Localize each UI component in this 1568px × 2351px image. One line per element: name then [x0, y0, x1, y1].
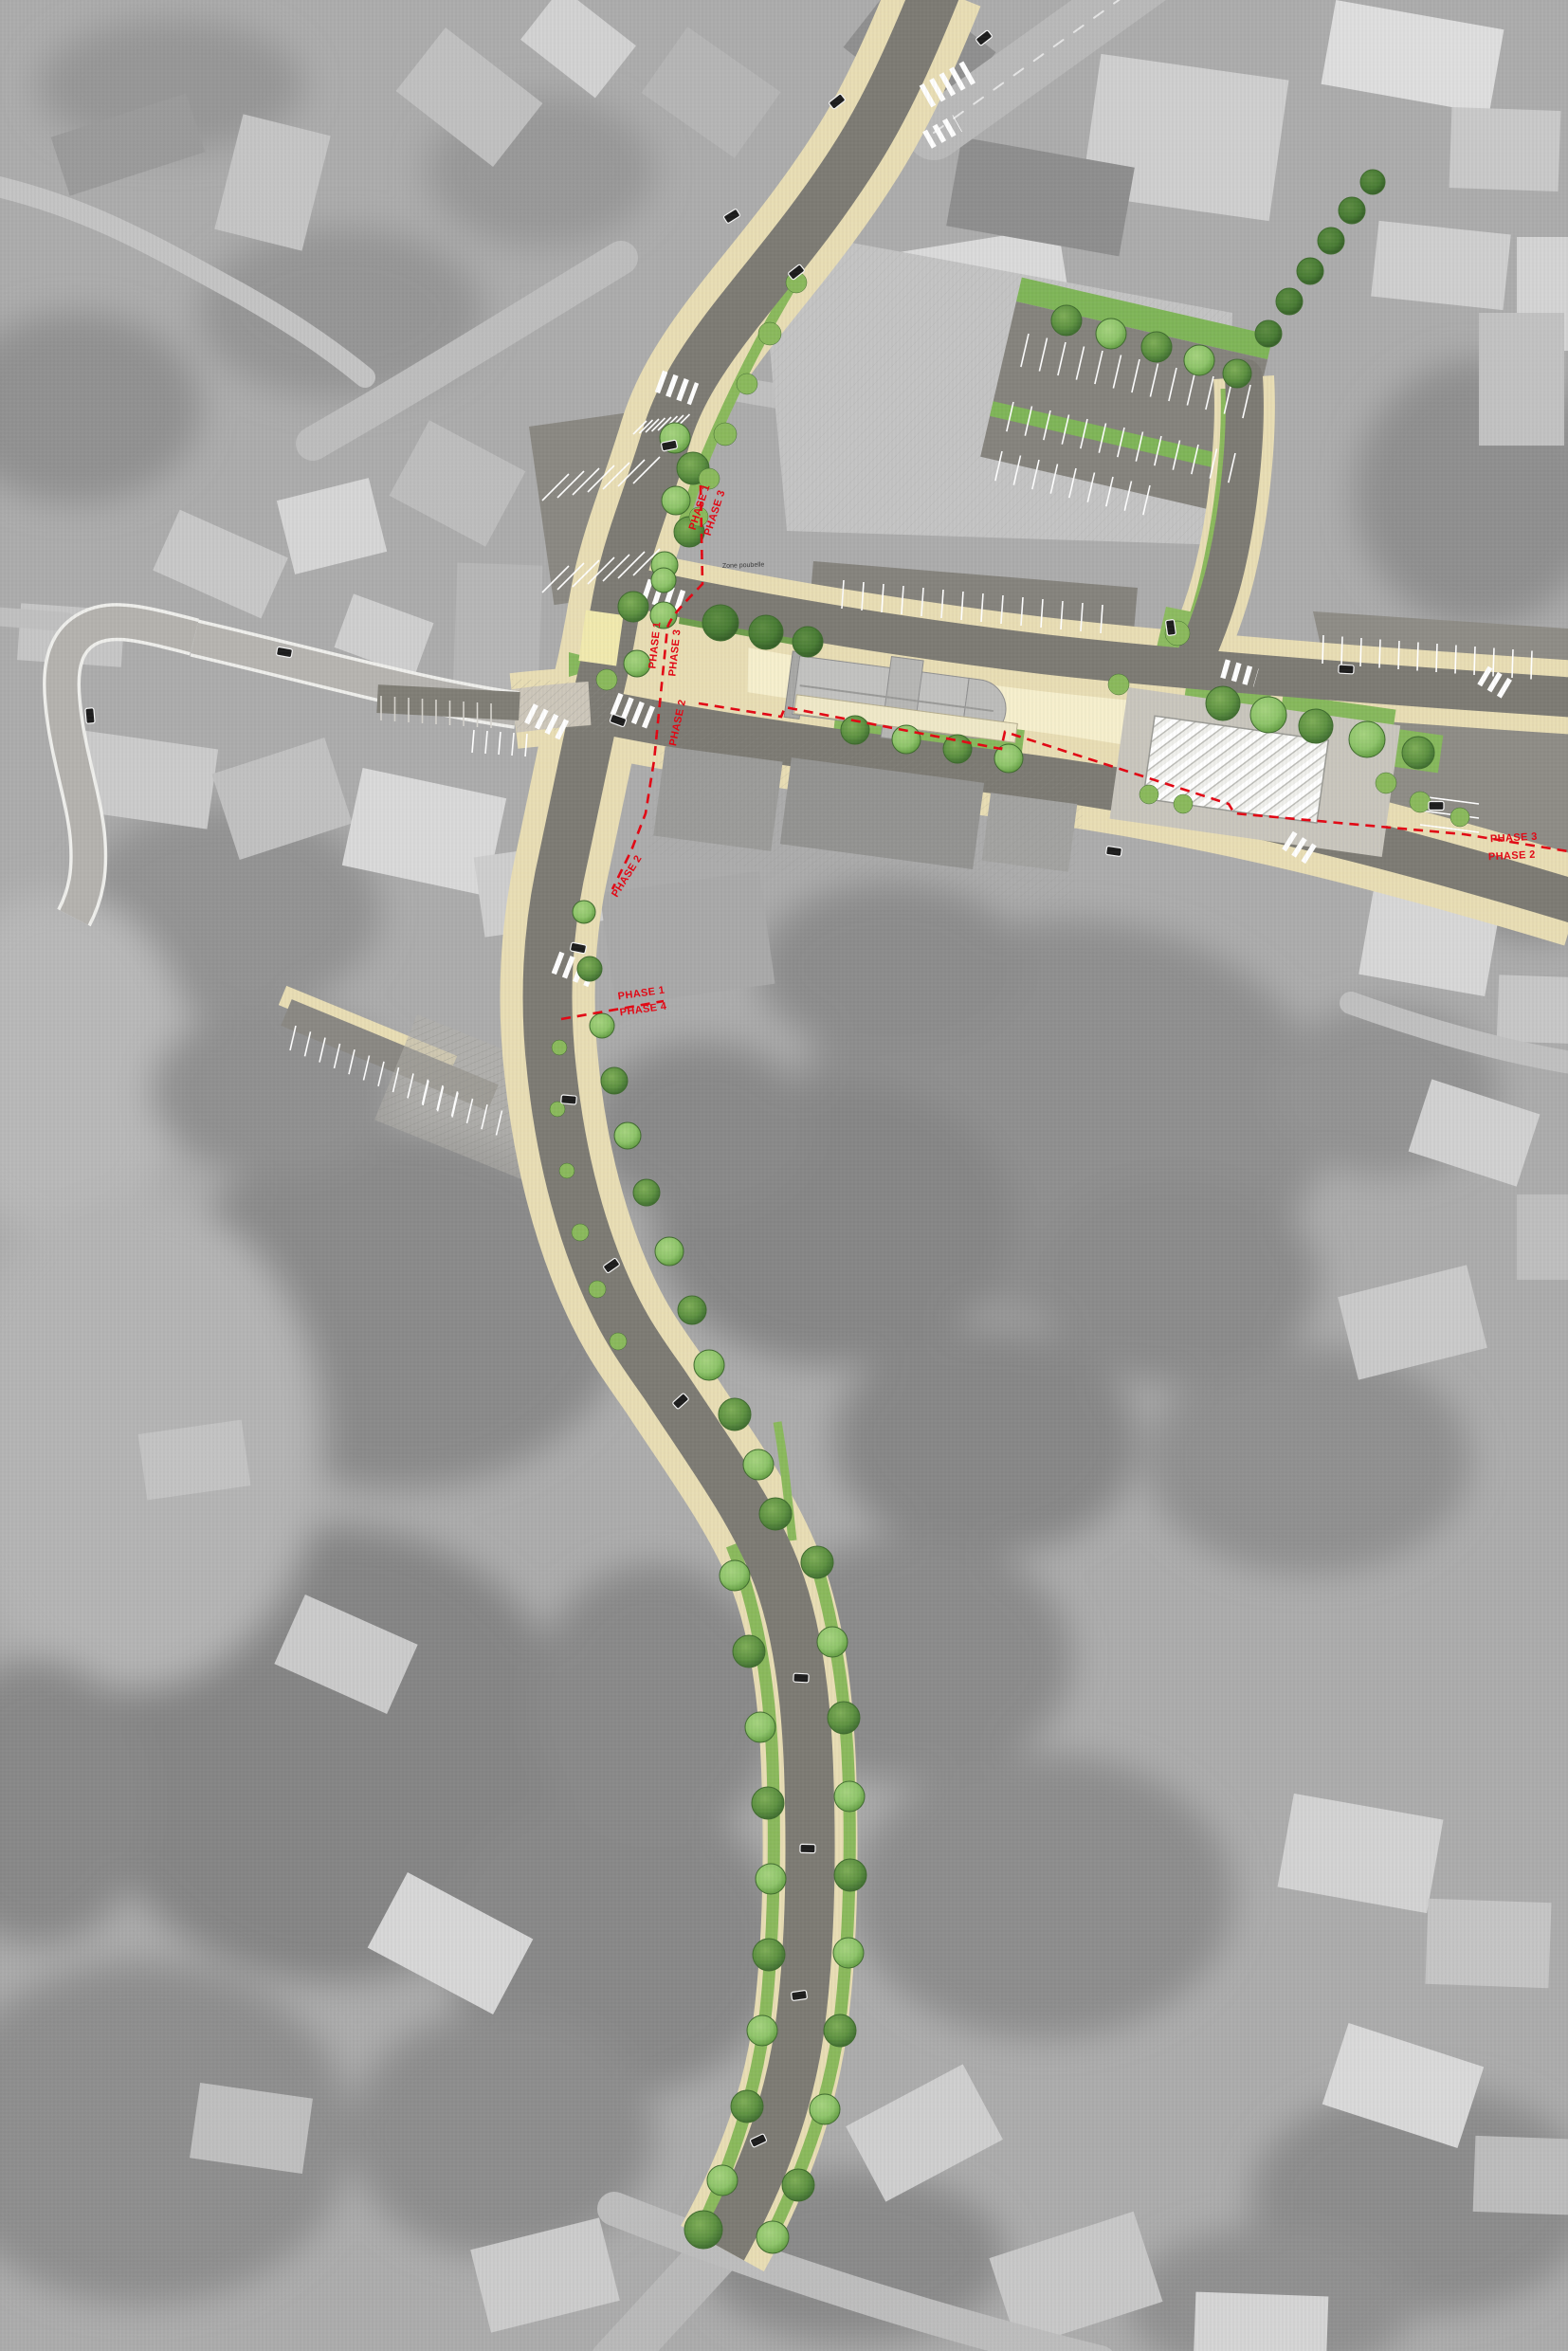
bush: [552, 1040, 567, 1055]
bush: [1450, 808, 1469, 827]
bush: [589, 1281, 606, 1298]
stall-line: [1379, 640, 1380, 668]
bush: [1376, 773, 1396, 793]
tree: [1360, 170, 1385, 194]
vegetation-blob: [834, 1327, 1138, 1555]
tree: [573, 901, 595, 923]
building-roof: [1449, 107, 1561, 191]
tree: [834, 1781, 865, 1812]
stall-line: [1322, 635, 1323, 664]
tree: [756, 1864, 786, 1894]
tree: [1339, 197, 1365, 224]
tree: [733, 1635, 765, 1668]
tree: [651, 568, 676, 592]
tree: [1349, 721, 1385, 757]
tree: [1250, 697, 1286, 733]
tree: [1318, 228, 1344, 254]
site-plan-svg: PHASE 1 PHASE 3 PHASE 1 PHASE 3 PHASE 2 …: [0, 0, 1568, 2351]
bush: [714, 423, 737, 446]
tree: [759, 1498, 792, 1530]
bush: [1140, 785, 1158, 804]
stall-line: [1398, 641, 1399, 669]
tree: [684, 2211, 722, 2249]
stall-line: [1531, 651, 1532, 680]
tree: [577, 957, 602, 981]
junction-paving-highlight: [578, 610, 623, 665]
car-icon: [793, 1673, 809, 1683]
tree: [662, 486, 690, 515]
tree: [833, 1938, 864, 1968]
building-roof: [190, 2083, 313, 2174]
car-icon: [276, 647, 292, 658]
stall-line: [1455, 646, 1456, 674]
tree: [707, 2165, 738, 2196]
tree: [834, 1859, 866, 1891]
tree: [745, 1712, 775, 1742]
tree: [1276, 288, 1303, 315]
tree: [618, 592, 648, 622]
tree: [655, 1237, 684, 1266]
tree: [1299, 709, 1333, 743]
bush: [610, 1333, 627, 1350]
tree: [817, 1627, 848, 1657]
tree: [702, 605, 738, 641]
car-icon: [800, 1844, 815, 1852]
car-icon: [1429, 802, 1444, 811]
bush: [758, 322, 781, 345]
tree: [782, 2169, 814, 2201]
tree: [694, 1350, 724, 1380]
building-roof: [1371, 221, 1511, 310]
car-icon: [85, 708, 95, 724]
tree: [747, 2015, 777, 2046]
tree: [793, 627, 823, 657]
tree: [720, 1560, 750, 1591]
bush: [1174, 794, 1193, 813]
tree: [810, 2094, 840, 2124]
tree: [1051, 305, 1082, 336]
tree: [743, 1449, 774, 1480]
tree: [1255, 320, 1282, 347]
tree: [731, 2090, 763, 2123]
tree: [719, 1398, 751, 1431]
tree: [590, 1013, 614, 1038]
building-roof: [1425, 1899, 1551, 1988]
stall-line: [1493, 648, 1494, 677]
tree: [1206, 686, 1240, 720]
tree: [753, 1939, 785, 1971]
tree: [749, 615, 783, 649]
building-roof: [1194, 2292, 1329, 2351]
building-roof: [599, 871, 775, 1006]
stall-line: [1417, 643, 1418, 671]
vegetation-blob: [758, 882, 1024, 1052]
building-roof: [1473, 2136, 1568, 2215]
car-icon: [1165, 619, 1176, 635]
stall-line: [1360, 638, 1361, 666]
car-icon: [1339, 665, 1354, 674]
stall-line: [1474, 647, 1475, 675]
tree: [1141, 332, 1172, 362]
tree: [757, 2221, 789, 2253]
car-icon: [561, 1095, 577, 1104]
bush: [559, 1163, 574, 1178]
tree: [752, 1787, 784, 1819]
bush: [737, 374, 757, 394]
tree: [1402, 737, 1434, 769]
tree: [801, 1546, 833, 1578]
building-roof: [1497, 975, 1568, 1044]
stall-line: [1512, 649, 1513, 678]
tree: [624, 650, 650, 677]
bush: [1108, 674, 1129, 695]
bush: [596, 669, 617, 690]
building-roof: [1479, 313, 1564, 446]
site-plan-canvas: PHASE 1 PHASE 3 PHASE 1 PHASE 3 PHASE 2 …: [0, 0, 1568, 2351]
tree: [824, 2014, 856, 2047]
tree: [1096, 319, 1126, 349]
tree: [1184, 345, 1214, 375]
tree: [828, 1702, 860, 1734]
bush: [1410, 792, 1431, 812]
stall-line: [1341, 637, 1342, 665]
tree: [678, 1296, 706, 1324]
tree: [633, 1179, 660, 1206]
stall-line: [1436, 644, 1437, 672]
tree: [1223, 359, 1251, 388]
vegetation-blob: [853, 1754, 1232, 2038]
car-icon: [1105, 846, 1121, 856]
tree: [601, 1067, 628, 1094]
building-roof: [1517, 1194, 1568, 1280]
tree: [1297, 258, 1323, 284]
tree: [614, 1122, 641, 1149]
bush: [572, 1224, 589, 1241]
car-icon: [791, 1990, 807, 2000]
